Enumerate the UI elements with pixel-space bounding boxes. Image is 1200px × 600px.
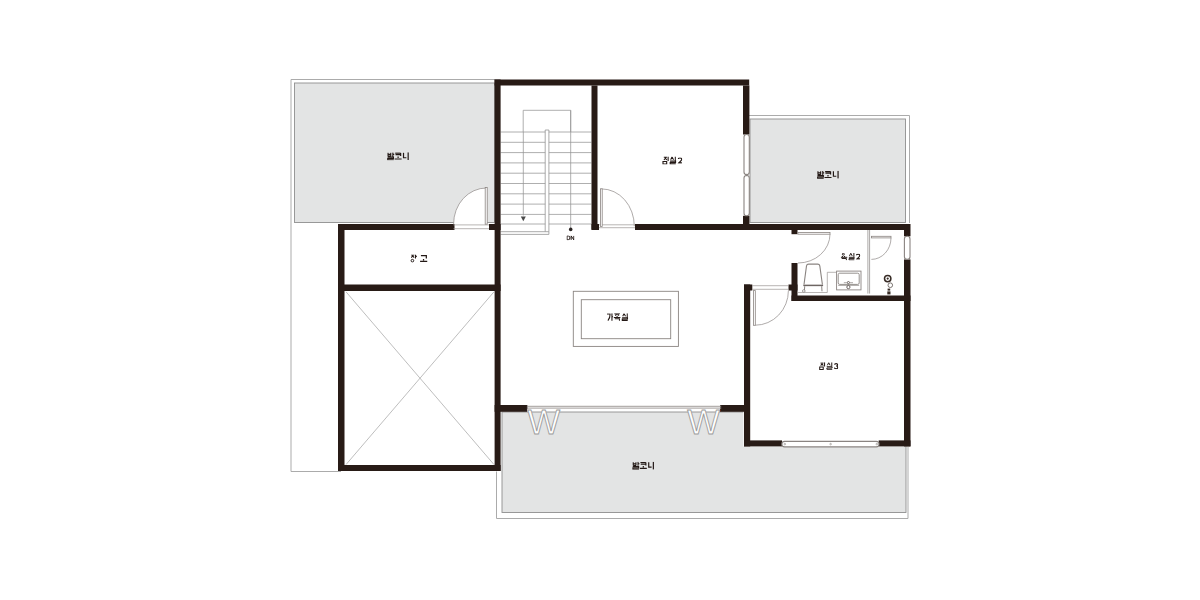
svg-text:W: W	[687, 403, 720, 441]
svg-text:W: W	[527, 403, 560, 441]
